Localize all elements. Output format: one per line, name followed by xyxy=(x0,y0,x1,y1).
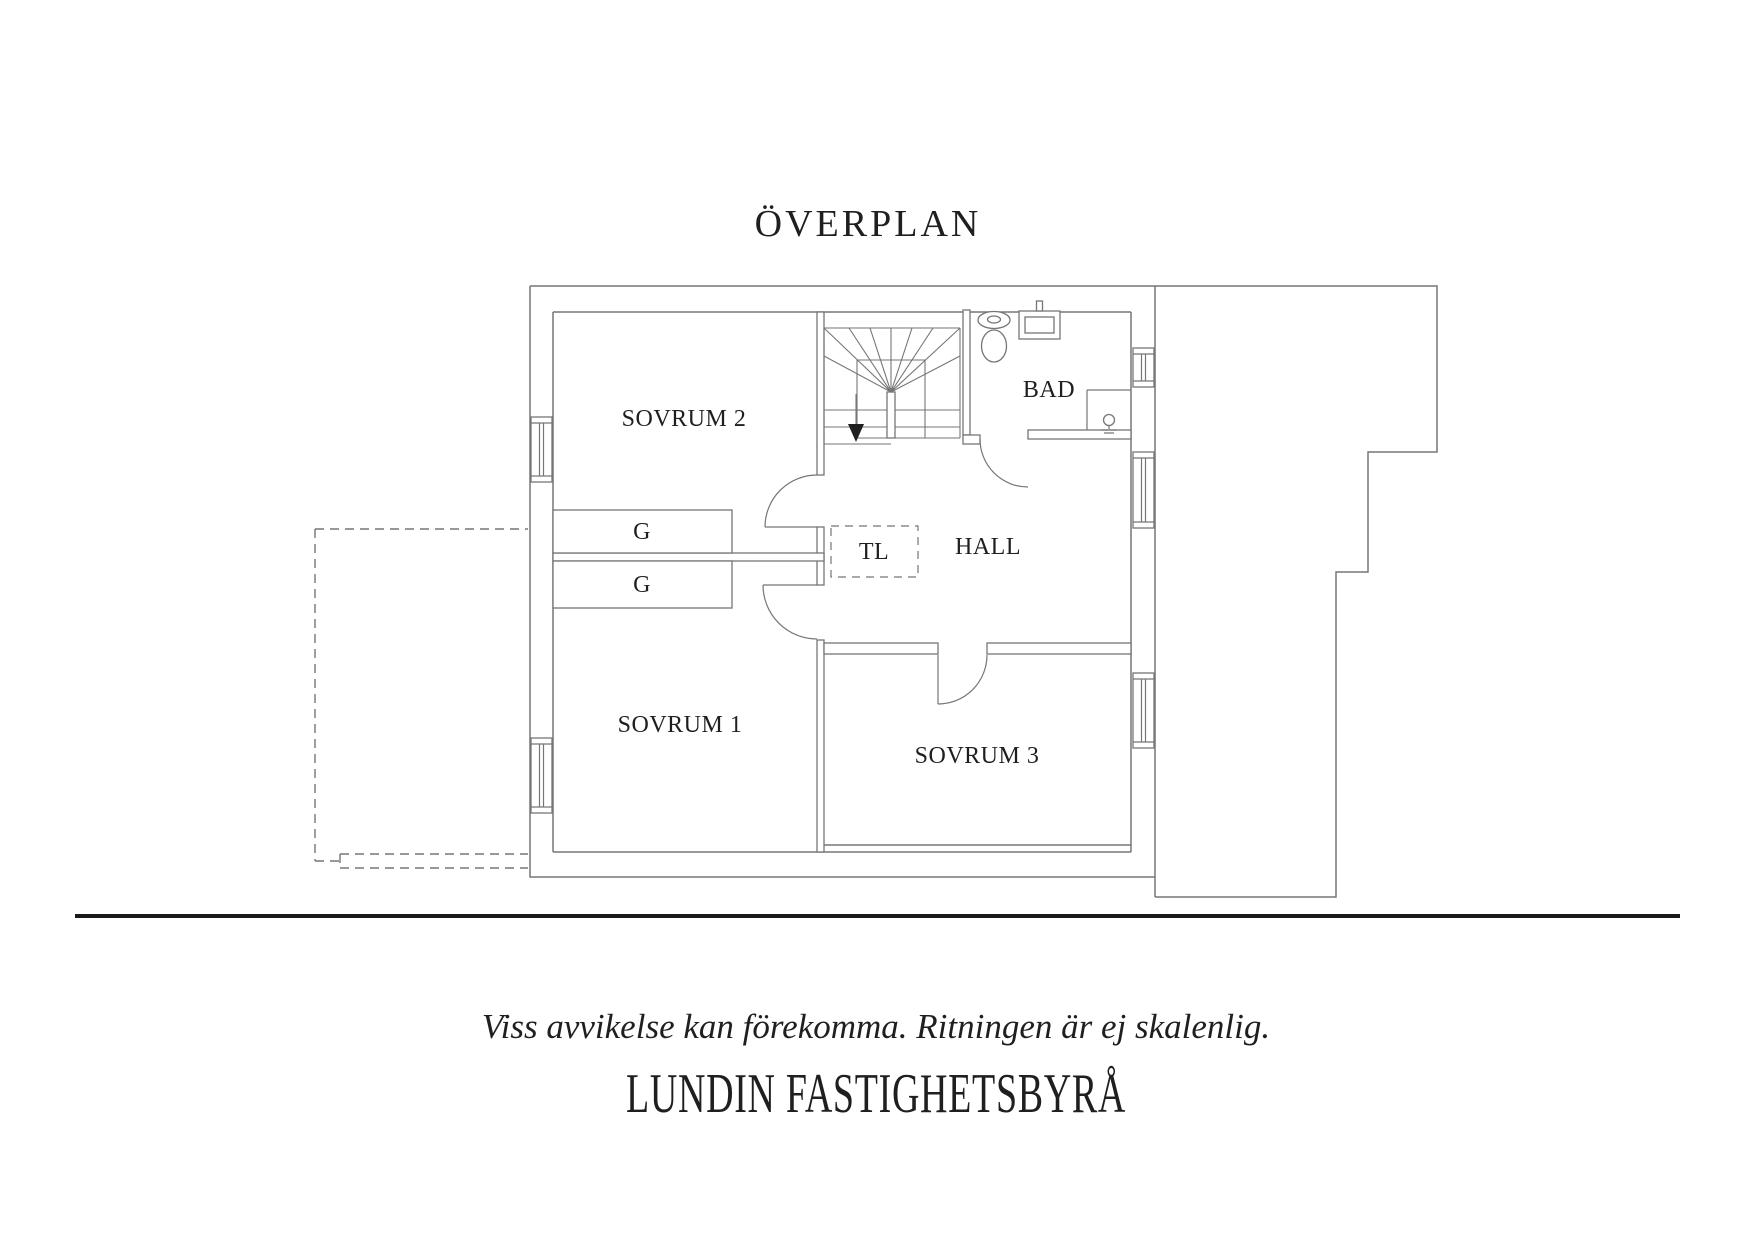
carport-dashed-outline xyxy=(315,529,528,868)
room-label-sovrum3: SOVRUM 3 xyxy=(915,743,1040,769)
room-label-sovrum2: SOVRUM 2 xyxy=(622,406,747,432)
annotation-g-bottom: G xyxy=(633,572,651,598)
footer-disclaimer: Viss avvikelse kan förekomma. Ritningen … xyxy=(482,1007,1270,1046)
footer-agency: LUNDIN FASTIGHETSBYRÅ xyxy=(626,1063,1126,1125)
separator-line xyxy=(75,914,1680,918)
window-symbol xyxy=(531,738,552,813)
window-symbol xyxy=(1133,673,1154,748)
bathroom-fixtures xyxy=(978,301,1117,433)
stairs-down-arrow-icon xyxy=(848,424,864,442)
floor-plan-page: ÖVERPLAN xyxy=(0,0,1754,1240)
door-swings xyxy=(763,439,1028,704)
floor-plan-drawing: ÖVERPLAN xyxy=(0,0,1754,1240)
window-symbol xyxy=(1133,452,1154,528)
room-label-bad: BAD xyxy=(1023,377,1075,403)
annotation-tl: TL xyxy=(859,539,889,565)
sink-icon xyxy=(1019,301,1060,339)
room-label-sovrum1: SOVRUM 1 xyxy=(618,712,743,738)
page-title: ÖVERPLAN xyxy=(755,203,982,245)
door-bad xyxy=(980,439,1028,487)
door-sovrum3 xyxy=(938,655,987,704)
room-label-hall: HALL xyxy=(955,534,1021,560)
window-symbol xyxy=(531,417,552,482)
window-symbol xyxy=(1133,348,1154,387)
toilet-icon xyxy=(978,312,1010,363)
annotation-g-top: G xyxy=(633,519,651,545)
door-sovrum2 xyxy=(765,475,817,527)
floor-drain-icon xyxy=(1101,415,1117,434)
staircase xyxy=(824,328,960,444)
door-sovrum1 xyxy=(763,585,817,639)
